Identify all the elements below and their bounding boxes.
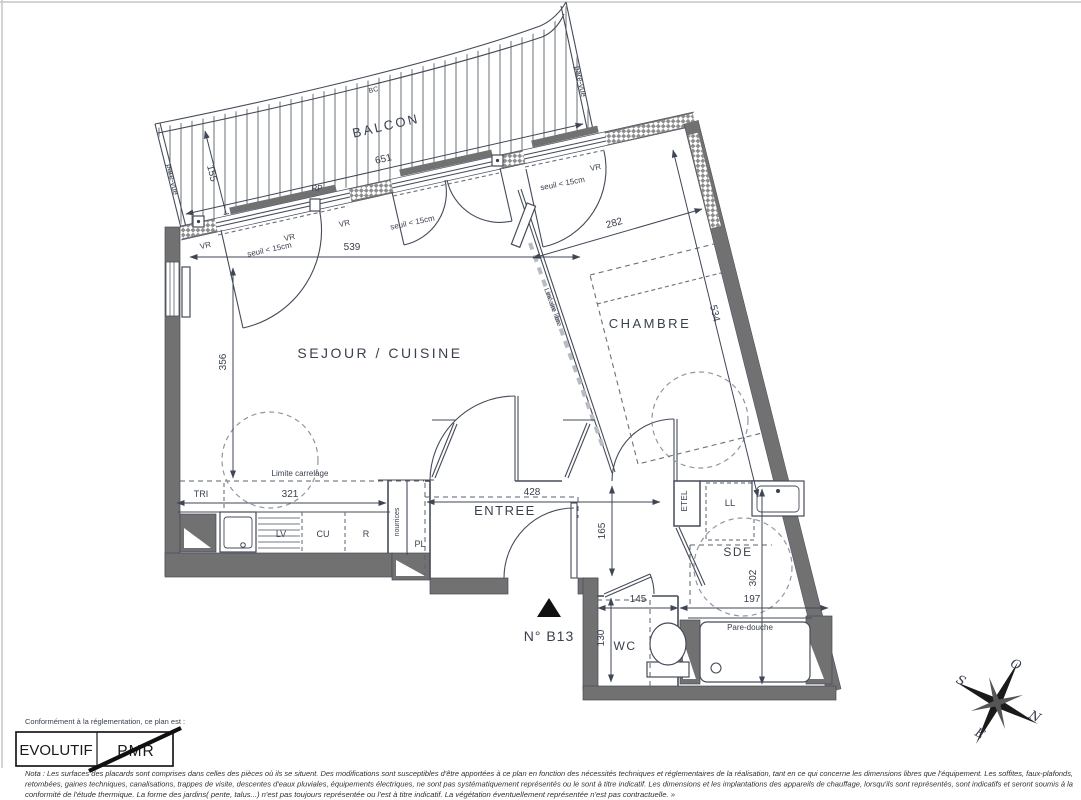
chambre-length-dim: 534 — [707, 304, 722, 323]
bed-outline — [590, 243, 766, 464]
sejour-depth-dim: 356 — [218, 353, 229, 370]
unit-marker: N° B13 — [524, 598, 575, 644]
dimensions: 539 356 321 428 165 282 534 302 197 145 … — [177, 150, 828, 684]
nota-line-3: conformité de l'étude thermique. La form… — [25, 790, 675, 799]
sde-label: SDE — [723, 545, 752, 559]
interior-walls — [378, 189, 775, 686]
balcony: BALCON 651 155 BC pare-vue pare-vue — [155, 2, 596, 232]
limite-carrelage-label: Limite carrelage — [272, 469, 329, 478]
nota-text: Nota : Les surfaces des placards sont co… — [25, 769, 1073, 799]
vr-label-4: VR — [589, 162, 602, 173]
wc-label: WC — [614, 639, 637, 653]
seuil-label-2: seuil < 15cm — [389, 213, 435, 231]
turning-circle-chambre — [652, 372, 748, 468]
sde-depth-dim: 302 — [748, 569, 759, 586]
vr-label-1: VR — [199, 240, 212, 251]
washbasin — [752, 481, 804, 516]
floor-plan-page: BALCON 651 155 BC pare-vue pare-vue — [0, 0, 1081, 800]
legend: Conformément à la réglementation, ce pla… — [16, 717, 185, 771]
legend-evolutif: EVOLUTIF — [19, 742, 92, 759]
kitchen-sink — [220, 512, 256, 552]
entree-depth-dim: 165 — [597, 522, 608, 539]
floor-plan-svg: BALCON 651 155 BC pare-vue pare-vue — [0, 0, 1081, 800]
seuil-label-3: seuil < 15cm — [540, 175, 586, 193]
dashed-guides — [180, 243, 792, 686]
entree-label: ENTREE — [474, 503, 536, 518]
compass-n: N — [1026, 706, 1045, 725]
wc-width-dim: 145 — [630, 594, 647, 605]
chambre-width-dim: 282 — [605, 216, 624, 231]
compass-rose-icon: O S N E — [954, 655, 1045, 744]
nota-line-2: retombées, gaines techniques, canalisati… — [25, 780, 1073, 789]
lv-label: LV — [276, 529, 286, 539]
pl-label: PL — [414, 539, 425, 549]
duct-pl — [392, 553, 430, 580]
etel-label: ETEL — [679, 490, 689, 512]
entrance-triangle-icon — [537, 598, 561, 617]
wc-depth-dim: 130 — [596, 629, 607, 646]
nourrices-label: nourrices — [394, 507, 401, 536]
entrance-door-leaf — [571, 503, 577, 578]
duct-tri — [180, 514, 216, 552]
ll-label: LL — [725, 498, 736, 509]
turning-circle-sejour — [222, 412, 318, 508]
legend-intro: Conformément à la réglementation, ce pla… — [25, 717, 185, 726]
chambre-label: CHAMBRE — [609, 316, 692, 331]
sejour-label: SEJOUR / CUISINE — [297, 345, 462, 361]
rp-label: RP — [311, 184, 322, 193]
toilet — [647, 623, 689, 677]
cu-label: CU — [317, 529, 330, 539]
tri-label: TRI — [194, 489, 209, 499]
vr-label-3: VR — [338, 218, 351, 229]
entree-width-dim: 428 — [524, 487, 541, 498]
radiator-chambre — [511, 203, 535, 247]
sejour-width-dim: 539 — [344, 242, 361, 253]
room-labels: SEJOUR / CUISINE CHAMBRE ENTREE SDE WC L… — [194, 287, 774, 653]
sde-fixtures — [647, 481, 812, 682]
nota-line-1: Nota : Les surfaces des placards sont co… — [25, 769, 1073, 778]
sde-width-dim: 197 — [744, 594, 761, 605]
pare-douche-label: Pare-douche — [727, 623, 773, 632]
kitchen-width-dim: 321 — [282, 489, 299, 500]
washing-machine — [706, 483, 754, 540]
compass-e: E — [972, 724, 988, 742]
radiator-sejour — [182, 267, 190, 317]
seuil-label-1: seuil < 15cm — [246, 240, 292, 258]
compass-o: O — [1008, 655, 1024, 673]
r-label: R — [363, 529, 370, 539]
unit-number: N° B13 — [524, 628, 575, 644]
pmr-strikethrough — [89, 728, 181, 771]
